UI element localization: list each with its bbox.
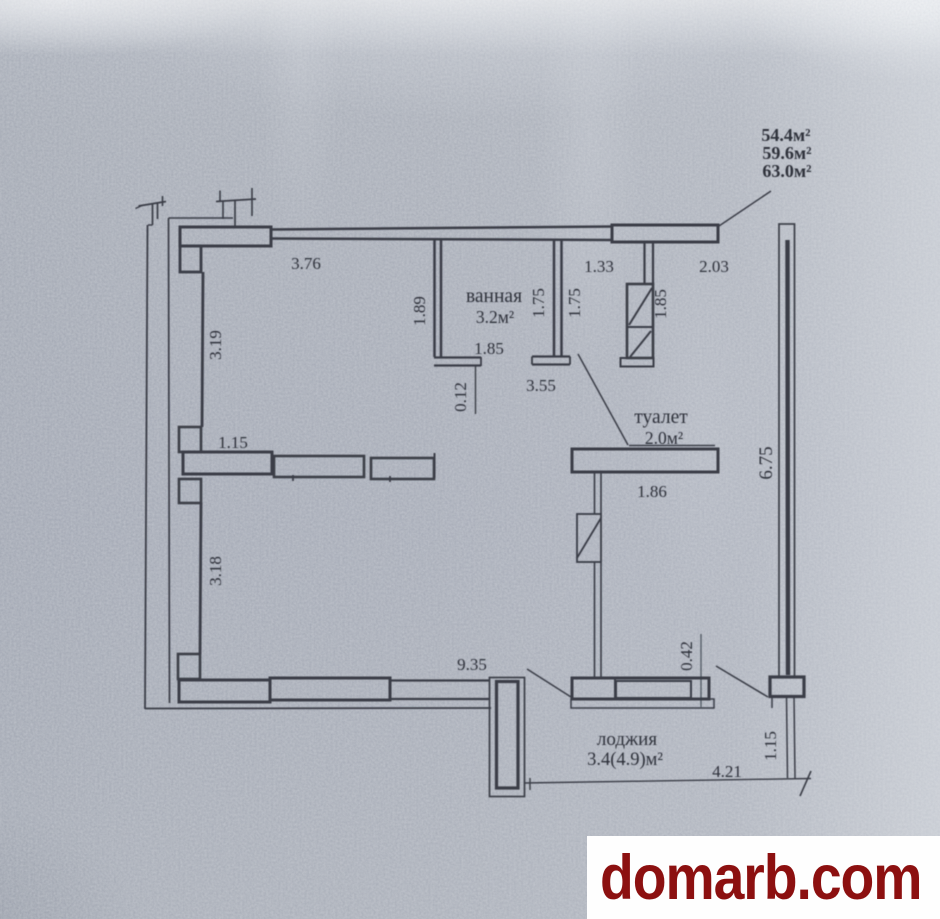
svg-text:1.15: 1.15 [218, 433, 248, 452]
svg-text:1.75: 1.75 [565, 288, 584, 318]
svg-text:2.03: 2.03 [699, 257, 729, 276]
svg-text:4.21: 4.21 [712, 762, 742, 781]
svg-text:0.12: 0.12 [451, 382, 470, 412]
svg-text:1.85: 1.85 [474, 339, 504, 358]
svg-text:туалет: туалет [634, 407, 688, 428]
svg-text:3.19: 3.19 [206, 330, 225, 360]
svg-text:9.35: 9.35 [457, 655, 487, 674]
svg-text:3.55: 3.55 [526, 376, 556, 395]
svg-text:1.75: 1.75 [529, 288, 548, 318]
svg-text:1.15: 1.15 [761, 731, 780, 761]
svg-text:3.76: 3.76 [291, 254, 321, 273]
svg-text:3.18: 3.18 [206, 556, 225, 586]
svg-text:1.86: 1.86 [637, 482, 667, 501]
svg-text:63.0м²: 63.0м² [762, 161, 811, 181]
svg-text:0.42: 0.42 [677, 641, 696, 671]
svg-text:3.4(4.9)м²: 3.4(4.9)м² [587, 750, 663, 770]
svg-text:3.2м²: 3.2м² [476, 307, 514, 327]
svg-text:2.0м²: 2.0м² [645, 428, 683, 448]
svg-text:ванная: ванная [466, 286, 522, 307]
svg-text:54.4м²: 54.4м² [761, 125, 810, 145]
svg-text:1.85: 1.85 [651, 289, 670, 319]
svg-text:лоджия: лоджия [597, 729, 657, 750]
svg-text:6.75: 6.75 [756, 446, 777, 479]
svg-text:1.33: 1.33 [584, 257, 614, 276]
svg-text:1.89: 1.89 [410, 296, 429, 326]
svg-text:59.6м²: 59.6м² [762, 143, 811, 163]
